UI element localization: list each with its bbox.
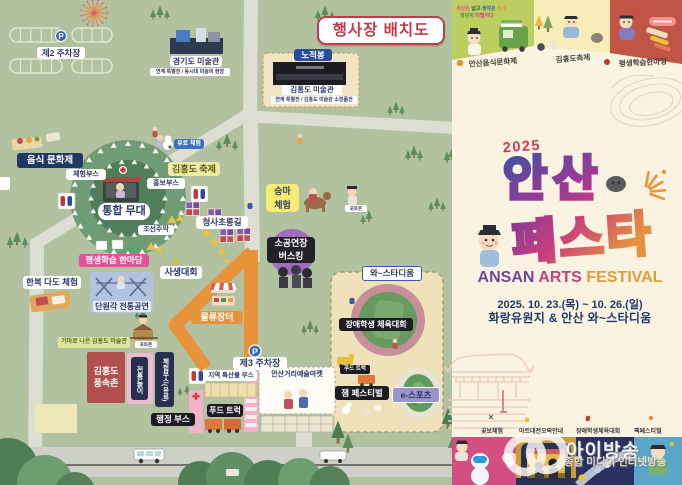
svg-text:페스타: 페스타 xyxy=(511,208,656,271)
svg-text:안산: 안산 xyxy=(503,153,603,206)
